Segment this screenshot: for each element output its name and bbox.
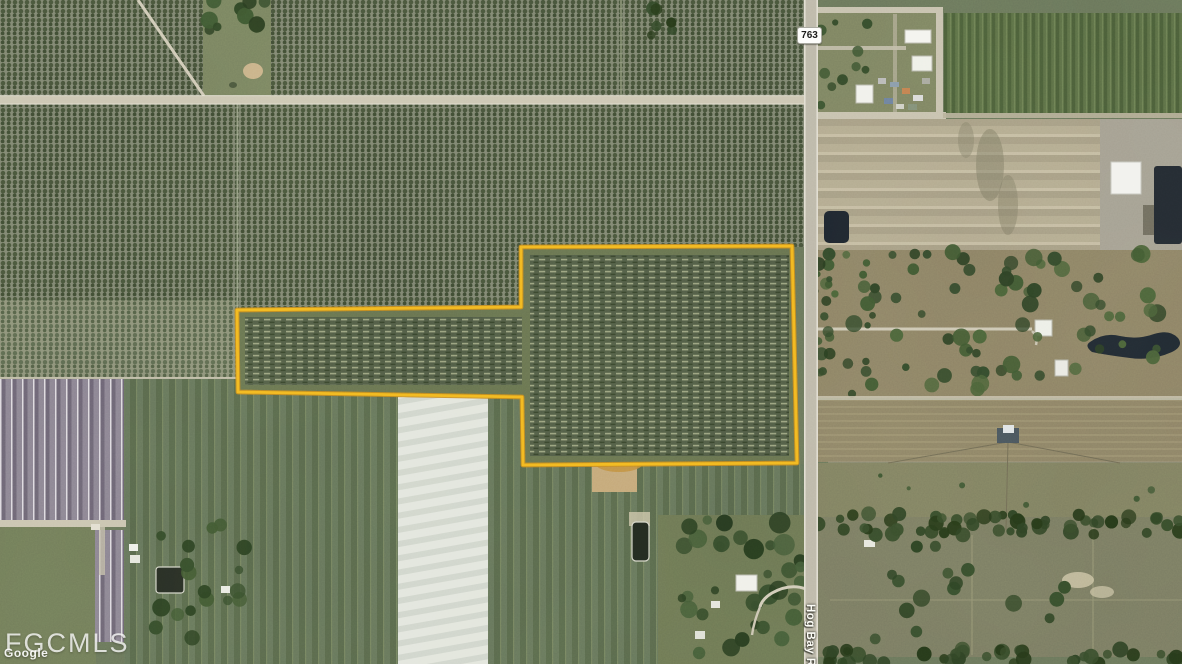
terrain-noise — [0, 0, 1182, 664]
satellite-map-image: 763 Hog Bay Rd FGCMLS Google — [0, 0, 1182, 664]
satellite-terrain — [0, 0, 1182, 664]
road-name-label: Hog Bay Rd — [804, 604, 816, 664]
route-shield-763: 763 — [797, 27, 822, 44]
google-attribution: Google — [4, 646, 48, 660]
